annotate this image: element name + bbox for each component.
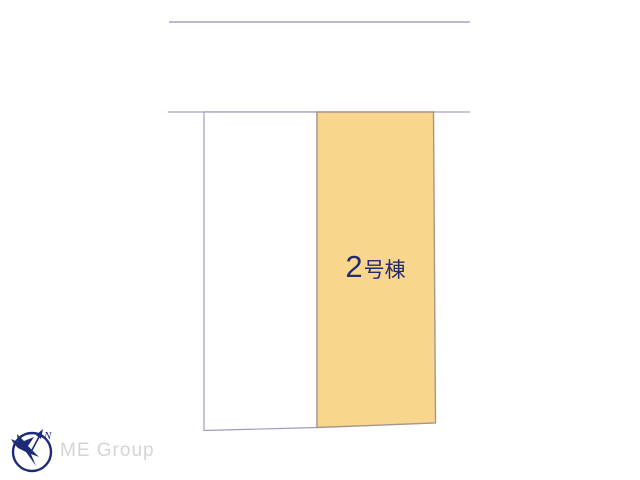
site-plan-canvas: 2 号棟 N ME Group (0, 0, 640, 480)
north-label: N (43, 430, 52, 442)
site-plan-drawing (0, 0, 640, 480)
plot-building-2 (317, 112, 436, 428)
plot-adjacent-lot (204, 112, 317, 431)
compass-bird-logo-icon: N (8, 420, 58, 476)
logo-wordmark: ME Group (60, 440, 155, 462)
